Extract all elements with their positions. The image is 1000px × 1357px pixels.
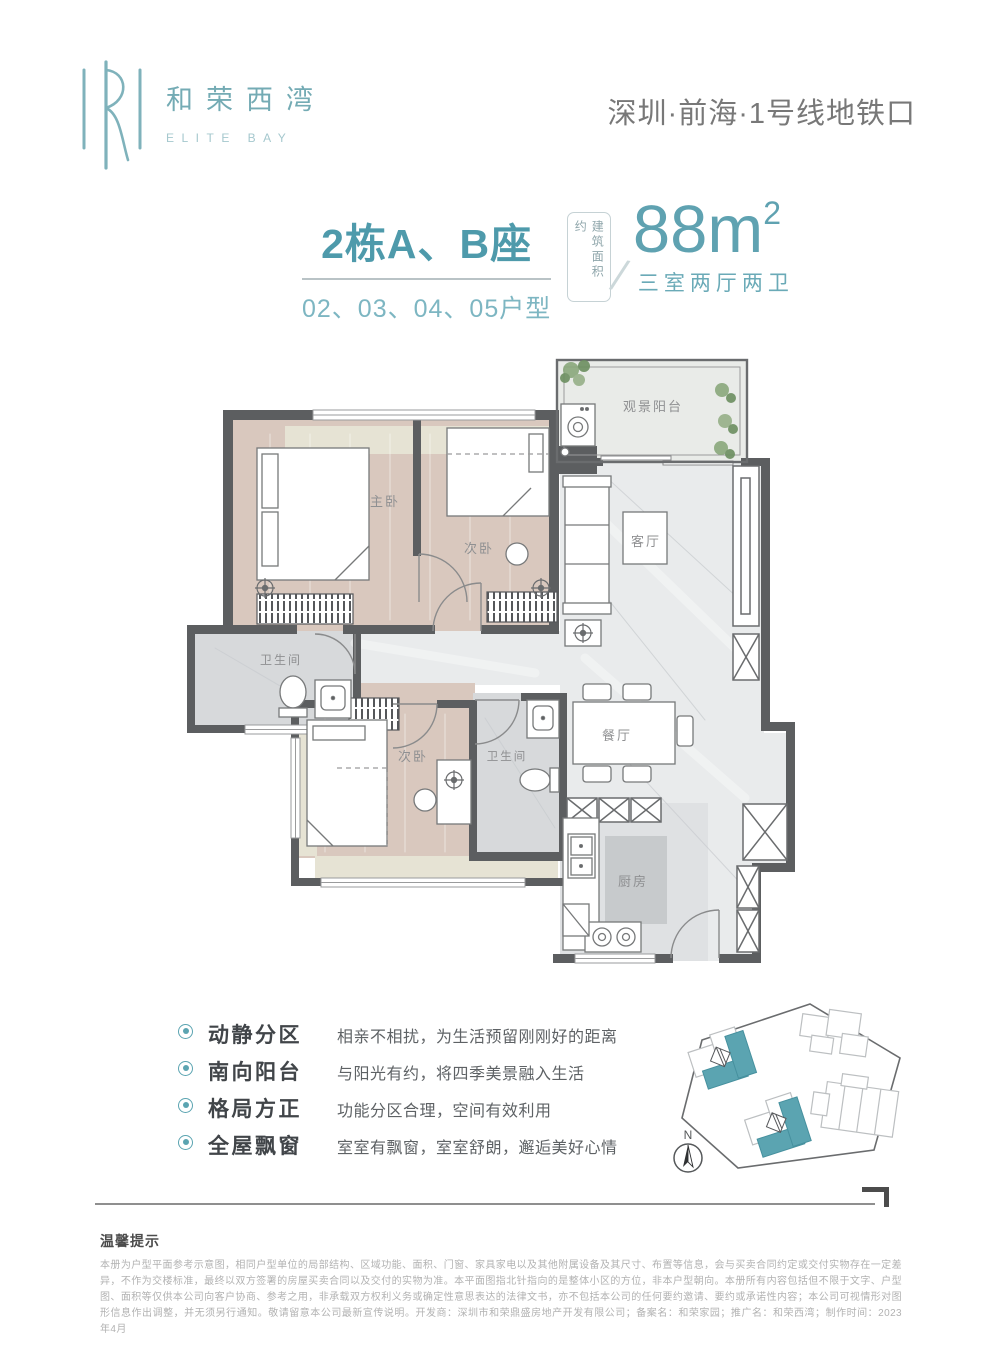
feature-row: 格局方正 功能分区合理，空间有效利用 — [178, 1093, 618, 1117]
unit-numbers: 02、03、04、05户型 — [302, 289, 551, 325]
feature-title: 全屋飘窗 — [208, 1130, 312, 1160]
feature-desc: 与阳光有约，将四季美景融入生活 — [337, 1060, 585, 1084]
label-living: 客厅 — [631, 534, 661, 549]
location-tagline: 深圳·前海·1号线地铁口 — [608, 90, 916, 132]
bullet-icon — [178, 1024, 193, 1039]
feature-title: 格局方正 — [208, 1093, 312, 1123]
divider-line — [95, 1203, 875, 1205]
logo-mark-icon — [76, 56, 148, 174]
site-plan: N — [642, 998, 942, 1215]
feature-desc: 功能分区合理，空间有效利用 — [337, 1097, 552, 1121]
feature-desc: 相亲不相扰，为生活预留刚刚好的距离 — [337, 1023, 618, 1047]
label-bedroom3: 次卧 — [398, 749, 428, 764]
layout-spec: 三室两厅两卫 — [633, 267, 794, 297]
corner-mark — [862, 1187, 889, 1207]
north-label: N — [684, 1128, 693, 1142]
label-bath-b: 卫生间 — [487, 749, 528, 763]
building-title: 2栋A、B座 — [302, 210, 551, 280]
feature-list: 动静分区 相亲不相扰，为生活预留刚刚好的距离 南向阳台 与阳光有约，将四季美景融… — [178, 1019, 618, 1167]
label-master: 主卧 — [370, 494, 400, 509]
label-kitchen: 厨房 — [618, 874, 648, 889]
disclaimer: 温馨提示 本册为户型平面参考示意图，相同户型单位的局部结构、区域功能、面积、门窗… — [100, 1231, 902, 1338]
area-value: 88m2 — [633, 196, 794, 263]
label-bedroom2: 次卧 — [464, 541, 494, 556]
disclaimer-title: 温馨提示 — [100, 1231, 902, 1251]
logo-name-cn: 和荣西湾 — [166, 78, 326, 117]
title-block: 2栋A、B座 02、03、04、05户型 建筑面积约 / 88m2 三室两厅两卫 — [302, 210, 794, 325]
feature-row: 全屋飘窗 室室有飘窗，室室舒朗，邂逅美好心情 — [178, 1130, 618, 1154]
bullet-icon — [178, 1135, 193, 1150]
feature-row: 动静分区 相亲不相扰，为生活预留刚刚好的距离 — [178, 1019, 618, 1043]
label-bath-a: 卫生间 — [260, 653, 302, 667]
feature-desc: 室室有飘窗，室室舒朗，邂逅美好心情 — [337, 1134, 618, 1158]
compass-icon: N — [674, 1128, 702, 1172]
slash-divider: / — [610, 251, 628, 300]
feature-title: 南向阳台 — [208, 1056, 312, 1086]
label-balcony: 观景阳台 — [623, 399, 683, 414]
floorplan: 观景阳台 主卧 次卧 客厅 卫生间 次卧 卫生间 餐厅 厨房 — [185, 348, 965, 1001]
bullet-icon — [178, 1098, 193, 1113]
logo-name-en: ELITE BAY — [166, 131, 326, 145]
label-dining: 餐厅 — [602, 728, 632, 743]
feature-title: 动静分区 — [208, 1019, 312, 1049]
feature-row: 南向阳台 与阳光有约，将四季美景融入生活 — [178, 1056, 618, 1080]
disclaimer-body: 本册为户型平面参考示意图，相同户型单位的局部结构、区域功能、面积、门窗、家具家电… — [100, 1258, 902, 1338]
bullet-icon — [178, 1061, 193, 1076]
brand-logo: 和荣西湾 ELITE BAY — [76, 56, 326, 174]
area-label-tag: 建筑面积约 — [567, 212, 611, 302]
